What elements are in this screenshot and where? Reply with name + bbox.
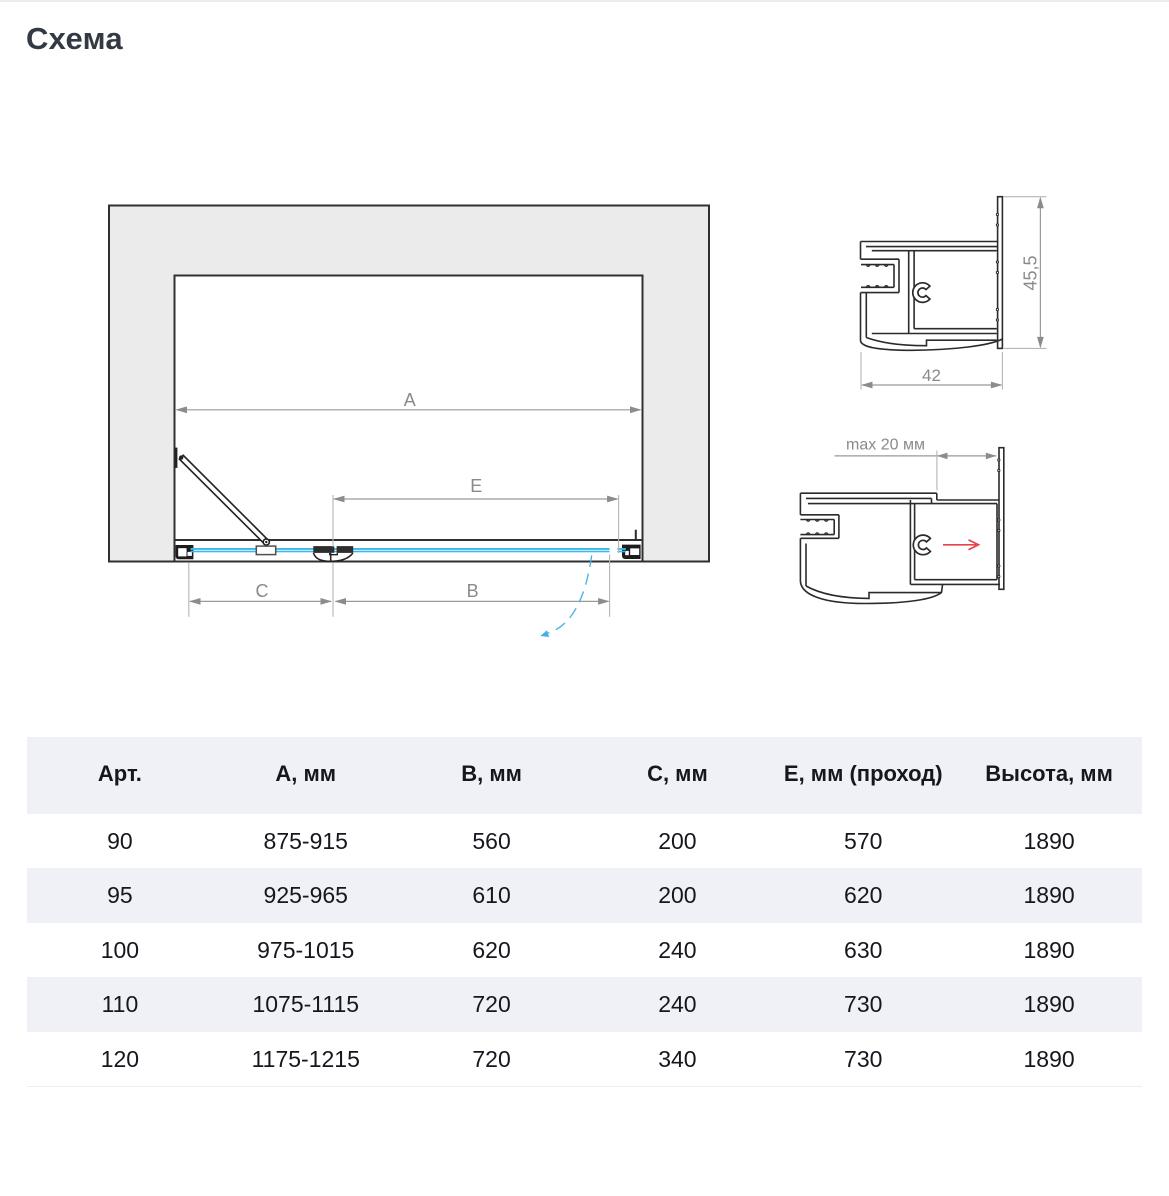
- svg-text:42: 42: [922, 366, 941, 385]
- svg-text:max 20 мм: max 20 мм: [846, 437, 925, 454]
- svg-text:E: E: [470, 476, 482, 496]
- svg-text:A: A: [404, 390, 416, 410]
- svg-text:45,5: 45,5: [1021, 255, 1041, 290]
- svg-text:B: B: [467, 581, 479, 601]
- svg-text:C: C: [256, 581, 269, 601]
